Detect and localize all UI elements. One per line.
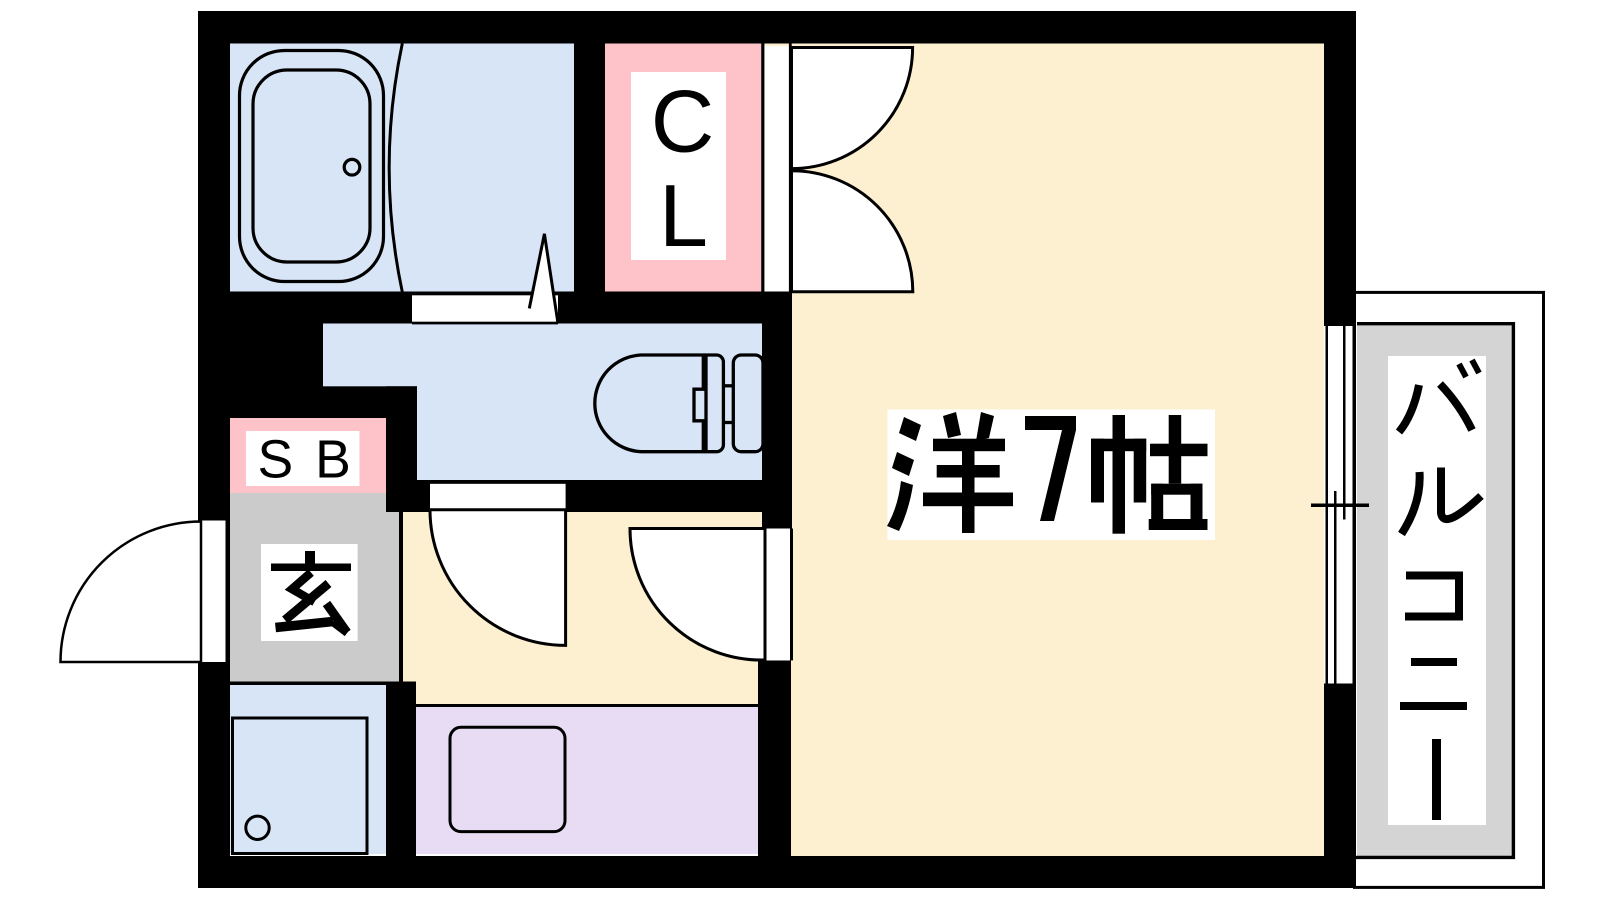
- svg-text:C: C: [651, 72, 715, 171]
- svg-text:L: L: [659, 166, 708, 265]
- svg-text:SB: SB: [258, 431, 373, 490]
